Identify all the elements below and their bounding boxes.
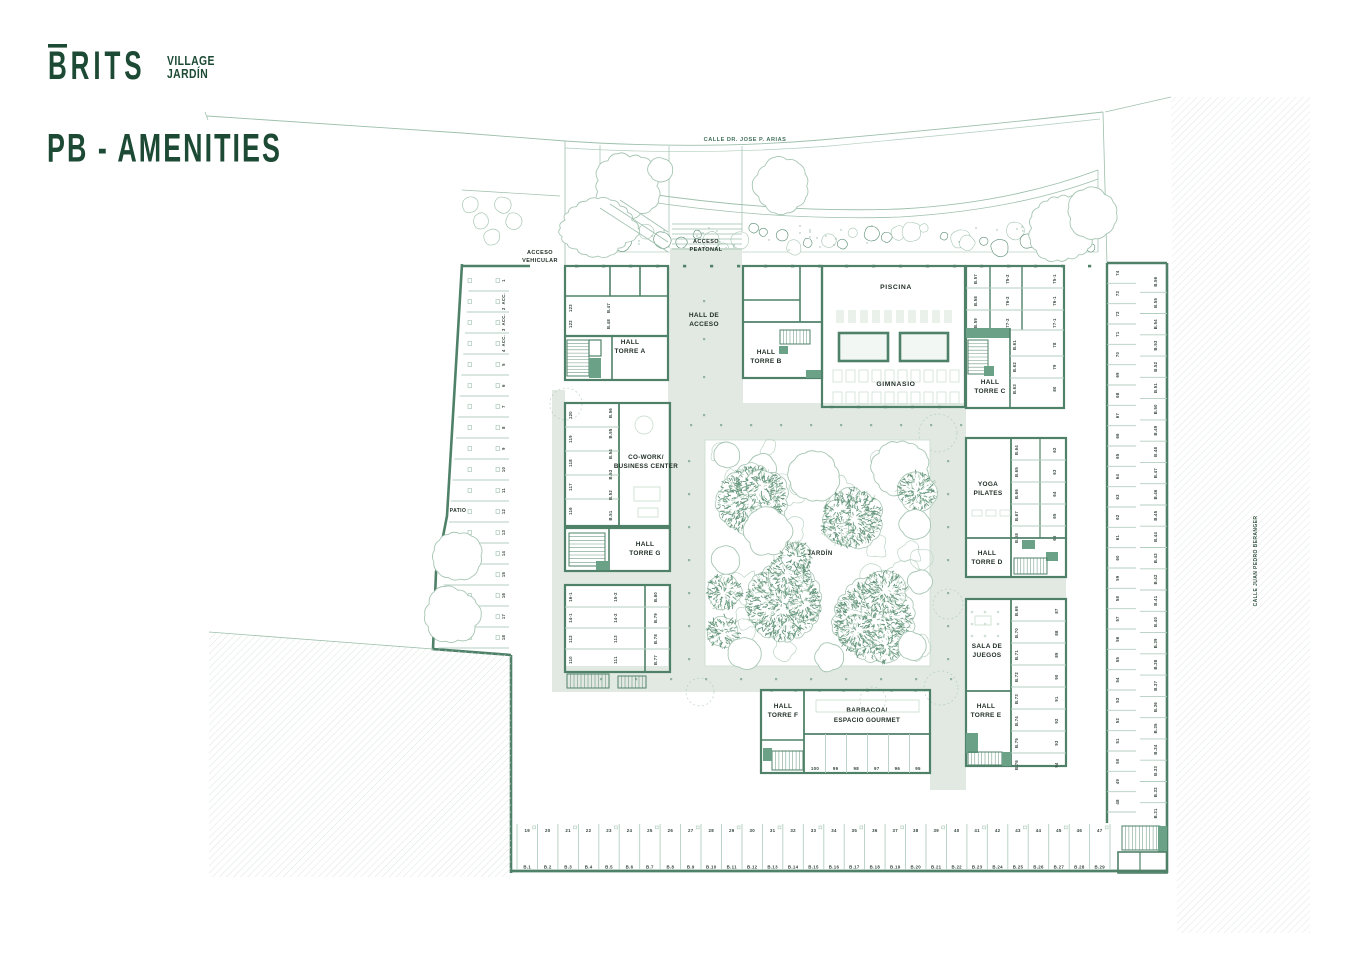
- svg-text:63: 63: [1052, 469, 1057, 475]
- svg-text:14-1: 14-1: [568, 613, 573, 623]
- svg-text:66: 66: [1115, 433, 1120, 439]
- svg-text:B.36: B.36: [1153, 702, 1158, 712]
- svg-text:BRITS: BRITS: [48, 43, 145, 88]
- svg-text:12: 12: [501, 509, 506, 515]
- svg-text:B.27: B.27: [1054, 865, 1065, 870]
- svg-text:28: 28: [709, 828, 715, 833]
- svg-text:TORRE F: TORRE F: [768, 712, 799, 719]
- svg-text:59: 59: [1115, 575, 1120, 581]
- svg-text:60: 60: [1115, 555, 1120, 561]
- svg-text:CALLE DR. JOSE P. ARIAS: CALLE DR. JOSE P. ARIAS: [704, 137, 787, 143]
- svg-text:35: 35: [852, 828, 858, 833]
- svg-text:B.56: B.56: [608, 408, 613, 418]
- svg-text:B.23: B.23: [972, 865, 983, 870]
- svg-text:B.41: B.41: [1153, 595, 1158, 605]
- svg-text:B.63: B.63: [1012, 384, 1017, 394]
- svg-text:70: 70: [1115, 352, 1120, 358]
- svg-text:B.26: B.26: [1033, 865, 1044, 870]
- svg-text:B.3: B.3: [564, 865, 572, 870]
- svg-text:69: 69: [1115, 372, 1120, 378]
- svg-text:95: 95: [915, 766, 921, 771]
- svg-text:B.66: B.66: [1014, 489, 1019, 499]
- svg-text:46: 46: [1077, 828, 1083, 833]
- svg-text:88: 88: [1054, 630, 1059, 636]
- svg-text:45: 45: [1056, 828, 1062, 833]
- svg-text:SALA DE: SALA DE: [972, 643, 1003, 650]
- svg-text:HALL: HALL: [774, 703, 793, 710]
- svg-text:20: 20: [545, 828, 551, 833]
- svg-text:B.76: B.76: [1014, 760, 1019, 770]
- svg-text:B.2: B.2: [544, 865, 552, 870]
- svg-text:JUEGOS: JUEGOS: [973, 652, 1002, 659]
- svg-text:5: 5: [501, 363, 506, 366]
- svg-text:100: 100: [811, 766, 819, 771]
- svg-text:B.54: B.54: [608, 449, 613, 459]
- svg-text:31: 31: [770, 828, 776, 833]
- svg-text:CALLE JUAN PEDRO BERANGER: CALLE JUAN PEDRO BERANGER: [1253, 516, 1259, 607]
- svg-text:B.62: B.62: [1012, 362, 1017, 372]
- svg-text:GIMNASIO: GIMNASIO: [876, 381, 915, 388]
- svg-text:15: 15: [501, 572, 506, 578]
- svg-text:34: 34: [831, 828, 837, 833]
- svg-text:41: 41: [974, 828, 980, 833]
- svg-text:18: 18: [501, 635, 506, 641]
- svg-text:HALL DE: HALL DE: [689, 312, 720, 319]
- svg-text:B.39: B.39: [1153, 638, 1158, 648]
- svg-text:21: 21: [565, 828, 571, 833]
- svg-text:7: 7: [501, 405, 506, 408]
- svg-text:64: 64: [1052, 491, 1057, 497]
- svg-text:62: 62: [1115, 514, 1120, 520]
- svg-text:90: 90: [1054, 674, 1059, 680]
- svg-text:B.40: B.40: [1153, 617, 1158, 627]
- svg-text:B.25: B.25: [1013, 865, 1024, 870]
- svg-text:ESPACIO GOURMET: ESPACIO GOURMET: [834, 717, 900, 724]
- svg-text:B.74: B.74: [1014, 716, 1019, 726]
- svg-text:62: 62: [1052, 447, 1057, 453]
- svg-text:PILATES: PILATES: [973, 490, 1002, 497]
- svg-text:97: 97: [874, 766, 880, 771]
- svg-text:B.13: B.13: [767, 865, 778, 870]
- svg-text:123: 123: [568, 304, 573, 312]
- svg-text:76-1: 76-1: [1052, 296, 1057, 306]
- svg-text:116: 116: [568, 507, 573, 515]
- svg-text:B.53: B.53: [608, 469, 613, 479]
- svg-text:B.80: B.80: [653, 592, 658, 602]
- svg-text:120: 120: [568, 411, 573, 419]
- svg-text:B.20: B.20: [911, 865, 922, 870]
- svg-text:16-1: 16-1: [568, 592, 573, 602]
- svg-text:87: 87: [1054, 608, 1059, 614]
- svg-text:TORRE E: TORRE E: [971, 712, 1002, 719]
- svg-text:9: 9: [501, 447, 506, 450]
- svg-text:32: 32: [790, 828, 796, 833]
- svg-text:57: 57: [1115, 616, 1120, 622]
- svg-text:B.32: B.32: [1153, 787, 1158, 797]
- svg-text:93: 93: [1054, 740, 1059, 746]
- svg-text:B.24: B.24: [992, 865, 1003, 870]
- svg-text:64: 64: [1115, 474, 1120, 480]
- svg-text:YOGA: YOGA: [978, 481, 998, 488]
- svg-text:44: 44: [1036, 828, 1042, 833]
- svg-text:91: 91: [1054, 696, 1059, 702]
- svg-text:B.75: B.75: [1014, 738, 1019, 748]
- svg-text:94: 94: [1054, 762, 1059, 768]
- svg-text:B.70: B.70: [1014, 628, 1019, 638]
- svg-text:B.78: B.78: [653, 634, 658, 644]
- svg-text:B.59: B.59: [973, 318, 978, 328]
- svg-text:B.7: B.7: [646, 865, 654, 870]
- svg-text:2 ACC.: 2 ACC.: [501, 293, 506, 310]
- svg-text:B.51: B.51: [608, 510, 613, 520]
- svg-text:54: 54: [1115, 677, 1120, 683]
- svg-text:B.28: B.28: [1074, 865, 1085, 870]
- svg-text:B.46: B.46: [1153, 489, 1158, 499]
- svg-text:B.54: B.54: [1153, 319, 1158, 329]
- svg-text:B.29: B.29: [1095, 865, 1106, 870]
- svg-text:75-1: 75-1: [1052, 274, 1057, 284]
- svg-text:1: 1: [501, 279, 506, 282]
- svg-text:77-2: 77-2: [1005, 318, 1010, 328]
- svg-text:HALL: HALL: [977, 703, 996, 710]
- svg-text:71: 71: [1115, 331, 1120, 337]
- svg-text:122: 122: [568, 320, 573, 328]
- svg-text:78: 78: [1052, 342, 1057, 348]
- svg-text:B.53: B.53: [1153, 340, 1158, 350]
- svg-text:B.45: B.45: [1153, 510, 1158, 520]
- svg-text:13: 13: [501, 530, 506, 536]
- svg-text:55: 55: [1115, 657, 1120, 663]
- svg-text:52: 52: [1115, 718, 1120, 724]
- svg-text:B.79: B.79: [653, 613, 658, 623]
- svg-text:4 ACC.: 4 ACC.: [501, 335, 506, 352]
- svg-text:B.37: B.37: [1153, 680, 1158, 690]
- svg-text:B.11: B.11: [727, 865, 737, 870]
- svg-text:15-2: 15-2: [613, 592, 618, 602]
- svg-text:29: 29: [729, 828, 735, 833]
- svg-text:ACCESO: ACCESO: [689, 321, 719, 328]
- svg-text:42: 42: [995, 828, 1001, 833]
- svg-text:ACCESO: ACCESO: [693, 239, 719, 245]
- svg-text:99: 99: [833, 766, 839, 771]
- svg-text:B.65: B.65: [1014, 467, 1019, 477]
- svg-text:B.22: B.22: [951, 865, 962, 870]
- svg-text:39: 39: [933, 828, 939, 833]
- svg-text:3 ACC.: 3 ACC.: [501, 314, 506, 331]
- svg-text:B.71: B.71: [1014, 650, 1019, 660]
- svg-text:B.18: B.18: [870, 865, 881, 870]
- svg-text:B.49: B.49: [1153, 425, 1158, 435]
- svg-text:51: 51: [1115, 738, 1120, 744]
- svg-text:B.16: B.16: [829, 865, 840, 870]
- svg-text:38: 38: [913, 828, 919, 833]
- svg-text:63: 63: [1115, 494, 1120, 500]
- svg-text:27: 27: [688, 828, 694, 833]
- svg-text:22: 22: [586, 828, 592, 833]
- svg-text:B.8: B.8: [667, 865, 675, 870]
- svg-text:24: 24: [627, 828, 633, 833]
- svg-text:74: 74: [1115, 270, 1120, 276]
- svg-text:58: 58: [1115, 596, 1120, 602]
- svg-text:8: 8: [501, 426, 506, 429]
- svg-text:26: 26: [668, 828, 674, 833]
- svg-text:68: 68: [1115, 392, 1120, 398]
- svg-text:B.48: B.48: [606, 319, 611, 329]
- svg-text:B.33: B.33: [1153, 765, 1158, 775]
- svg-text:JARDÍN: JARDÍN: [807, 549, 832, 557]
- svg-text:14-2: 14-2: [613, 613, 618, 623]
- svg-text:B.61: B.61: [1012, 340, 1017, 350]
- svg-text:98: 98: [853, 766, 859, 771]
- svg-text:40: 40: [954, 828, 960, 833]
- svg-text:B.6: B.6: [626, 865, 634, 870]
- svg-text:112: 112: [568, 635, 573, 643]
- svg-text:77-1: 77-1: [1052, 318, 1057, 328]
- svg-text:B.14: B.14: [788, 865, 799, 870]
- svg-text:89: 89: [1054, 652, 1059, 658]
- svg-text:CO-WORK/: CO-WORK/: [628, 454, 664, 461]
- svg-text:49: 49: [1115, 779, 1120, 785]
- svg-text:B.56: B.56: [1153, 276, 1158, 286]
- svg-text:17: 17: [501, 614, 506, 620]
- svg-text:33: 33: [811, 828, 817, 833]
- svg-text:118: 118: [568, 459, 573, 467]
- svg-text:HALL: HALL: [636, 541, 655, 548]
- svg-text:PEATONAL: PEATONAL: [690, 247, 723, 253]
- svg-text:25: 25: [647, 828, 653, 833]
- svg-text:43: 43: [1015, 828, 1021, 833]
- svg-text:ACCESO: ACCESO: [527, 250, 553, 256]
- svg-text:TORRE G: TORRE G: [629, 550, 661, 557]
- svg-text:113: 113: [613, 635, 618, 643]
- svg-text:16: 16: [501, 593, 506, 599]
- svg-text:B.58: B.58: [973, 296, 978, 306]
- svg-text:B.1: B.1: [523, 865, 531, 870]
- svg-text:56: 56: [1115, 636, 1120, 642]
- svg-text:B.77: B.77: [653, 655, 658, 665]
- svg-text:PATIO: PATIO: [450, 508, 467, 514]
- svg-text:50: 50: [1115, 758, 1120, 764]
- svg-text:B.55: B.55: [1153, 298, 1158, 308]
- svg-text:B.44: B.44: [1153, 531, 1158, 541]
- svg-text:B.15: B.15: [808, 865, 819, 870]
- svg-text:B.50: B.50: [1153, 404, 1158, 414]
- svg-text:10: 10: [501, 467, 506, 473]
- svg-text:B.51: B.51: [1153, 383, 1158, 393]
- svg-text:61: 61: [1115, 535, 1120, 541]
- svg-text:B.73: B.73: [1014, 694, 1019, 704]
- svg-text:72: 72: [1115, 311, 1120, 317]
- svg-text:75-2: 75-2: [1005, 274, 1010, 284]
- svg-text:B.31: B.31: [1153, 808, 1158, 818]
- svg-text:B.17: B.17: [849, 865, 860, 870]
- svg-text:B.38: B.38: [1153, 659, 1158, 669]
- svg-text:110: 110: [568, 656, 573, 664]
- svg-text:117: 117: [568, 483, 573, 491]
- svg-text:B.12: B.12: [747, 865, 758, 870]
- svg-text:B.55: B.55: [608, 428, 613, 438]
- svg-text:19: 19: [524, 828, 530, 833]
- svg-text:BARBACOA/: BARBACOA/: [846, 707, 887, 714]
- svg-text:TORRE C: TORRE C: [974, 388, 1005, 395]
- svg-text:36: 36: [872, 828, 878, 833]
- svg-text:B.72: B.72: [1014, 672, 1019, 682]
- svg-text:B.67: B.67: [1014, 511, 1019, 521]
- svg-text:48: 48: [1115, 799, 1120, 805]
- svg-text:B.69: B.69: [1014, 606, 1019, 616]
- svg-text:B.48: B.48: [1153, 446, 1158, 456]
- svg-text:VEHICULAR: VEHICULAR: [522, 258, 558, 264]
- svg-text:65: 65: [1115, 453, 1120, 459]
- svg-text:B.21: B.21: [931, 865, 942, 870]
- svg-text:14: 14: [501, 551, 506, 557]
- svg-text:TORRE B: TORRE B: [750, 358, 781, 365]
- svg-text:HALL: HALL: [757, 349, 776, 356]
- svg-text:HALL: HALL: [978, 550, 997, 557]
- svg-text:65: 65: [1052, 513, 1057, 519]
- svg-text:B.43: B.43: [1153, 553, 1158, 563]
- svg-text:B.47: B.47: [606, 303, 611, 313]
- svg-text:B.42: B.42: [1153, 574, 1158, 584]
- svg-text:PB - AMENITIES: PB - AMENITIES: [47, 126, 282, 170]
- svg-text:B.35: B.35: [1153, 723, 1158, 733]
- svg-text:B.52: B.52: [608, 490, 613, 500]
- svg-text:92: 92: [1054, 718, 1059, 724]
- svg-text:B.52: B.52: [1153, 361, 1158, 371]
- svg-text:B.4: B.4: [585, 865, 593, 870]
- svg-text:BUSINESS CENTER: BUSINESS CENTER: [614, 463, 678, 470]
- svg-text:B.47: B.47: [1153, 468, 1158, 478]
- svg-text:B.10: B.10: [706, 865, 717, 870]
- svg-text:119: 119: [568, 435, 573, 443]
- svg-text:30: 30: [749, 828, 755, 833]
- svg-text:JARDÍN: JARDÍN: [167, 67, 208, 81]
- svg-text:37: 37: [893, 828, 899, 833]
- svg-text:PISCINA: PISCINA: [880, 284, 912, 291]
- svg-text:111: 111: [613, 656, 618, 664]
- svg-text:23: 23: [606, 828, 612, 833]
- svg-text:73: 73: [1115, 291, 1120, 297]
- svg-text:B.5: B.5: [605, 865, 613, 870]
- svg-text:80: 80: [1052, 386, 1057, 392]
- svg-text:B.57: B.57: [973, 274, 978, 284]
- svg-text:HALL: HALL: [621, 339, 640, 346]
- svg-text:11: 11: [501, 488, 506, 493]
- svg-text:TORRE D: TORRE D: [971, 559, 1002, 566]
- svg-text:B.9: B.9: [687, 865, 695, 870]
- svg-text:B.19: B.19: [890, 865, 901, 870]
- svg-text:79: 79: [1052, 364, 1057, 370]
- svg-text:53: 53: [1115, 697, 1120, 703]
- svg-text:67: 67: [1115, 413, 1120, 419]
- svg-text:47: 47: [1097, 828, 1103, 833]
- svg-text:B.64: B.64: [1014, 445, 1019, 455]
- svg-text:HALL: HALL: [981, 379, 1000, 386]
- svg-text:TORRE A: TORRE A: [615, 348, 646, 355]
- svg-text:76-2: 76-2: [1005, 296, 1010, 306]
- svg-text:B.34: B.34: [1153, 744, 1158, 754]
- svg-text:6: 6: [501, 384, 506, 387]
- svg-text:96: 96: [895, 766, 901, 771]
